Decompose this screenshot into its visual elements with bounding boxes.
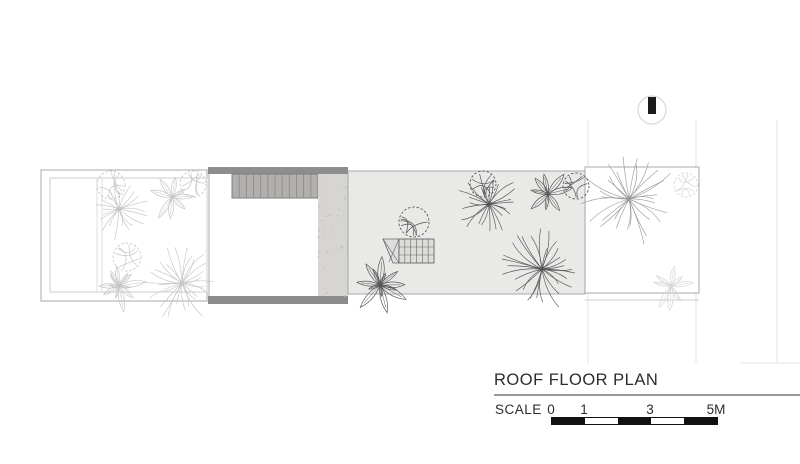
north-indicator-needle xyxy=(648,97,656,114)
concrete-speckle xyxy=(323,232,324,233)
concrete-speckle xyxy=(341,248,343,250)
roof-floor-plan-page: ROOF FLOOR PLAN SCALE 0 1 3 5M xyxy=(0,0,800,464)
scale-bar-segment xyxy=(651,418,684,424)
scale-tick-3: 3 xyxy=(646,402,654,417)
concrete-speckle xyxy=(345,186,347,188)
concrete-speckle xyxy=(340,246,342,248)
concrete-speckle xyxy=(321,202,322,203)
concrete-speckle xyxy=(332,251,333,252)
concrete-speckle xyxy=(326,188,327,189)
concrete-speckle xyxy=(321,194,322,195)
scale-tick-5m: 5M xyxy=(707,402,726,417)
concrete-speckle xyxy=(320,220,321,221)
scale-row: SCALE 0 1 3 5M xyxy=(494,402,800,418)
scale-tick-1: 1 xyxy=(580,402,588,417)
concrete-speckle xyxy=(343,186,344,187)
concrete-speckle xyxy=(322,238,323,239)
concrete-speckle xyxy=(329,236,330,237)
concrete-speckle xyxy=(320,180,321,181)
concrete-speckle xyxy=(338,208,340,210)
concrete-speckle xyxy=(324,223,325,224)
concrete-speckle xyxy=(323,269,324,270)
title-rule xyxy=(494,394,800,396)
concrete-speckle xyxy=(319,184,321,186)
concrete-speckle xyxy=(318,250,320,252)
concrete-speckle xyxy=(342,215,343,216)
concrete-speckle xyxy=(343,211,344,212)
concrete-speckle xyxy=(318,236,320,238)
concrete-speckle xyxy=(341,272,342,273)
concrete-speckle xyxy=(331,252,332,253)
scale-bar-segment xyxy=(684,418,717,424)
concrete-speckle xyxy=(318,230,320,232)
concrete-speckle xyxy=(317,256,319,258)
building-top-wall xyxy=(208,167,348,174)
title-block: ROOF FLOOR PLAN SCALE 0 1 3 5M xyxy=(494,371,800,390)
concrete-speckle xyxy=(344,196,345,197)
concrete-speckle xyxy=(344,295,346,297)
scale-tick-0: 0 xyxy=(547,402,555,417)
concrete-speckle xyxy=(318,205,320,207)
concrete-speckle xyxy=(331,228,332,229)
concrete-speckle xyxy=(344,197,346,199)
concrete-speckle xyxy=(346,248,347,249)
concrete-speckle xyxy=(326,292,328,294)
scale-bar-segment xyxy=(618,418,651,424)
concrete-speckle xyxy=(345,282,346,283)
scale-label: SCALE xyxy=(495,402,542,417)
concrete-speckle xyxy=(328,214,330,216)
concrete-speckle xyxy=(326,251,328,253)
scale-bar xyxy=(551,417,718,425)
concrete-speckle xyxy=(336,215,338,217)
scale-bar-segment xyxy=(585,418,618,424)
right-garden-outline xyxy=(585,167,699,293)
building-bottom-wall xyxy=(208,296,348,304)
concrete-speckle xyxy=(324,267,326,269)
concrete-speckle xyxy=(325,288,326,289)
concrete-strip xyxy=(318,174,348,296)
concrete-speckle xyxy=(324,230,325,231)
plan-title: ROOF FLOOR PLAN xyxy=(494,371,800,390)
scale-bar-segment xyxy=(552,418,585,424)
concrete-speckle xyxy=(320,265,321,266)
concrete-speckle xyxy=(325,215,327,217)
